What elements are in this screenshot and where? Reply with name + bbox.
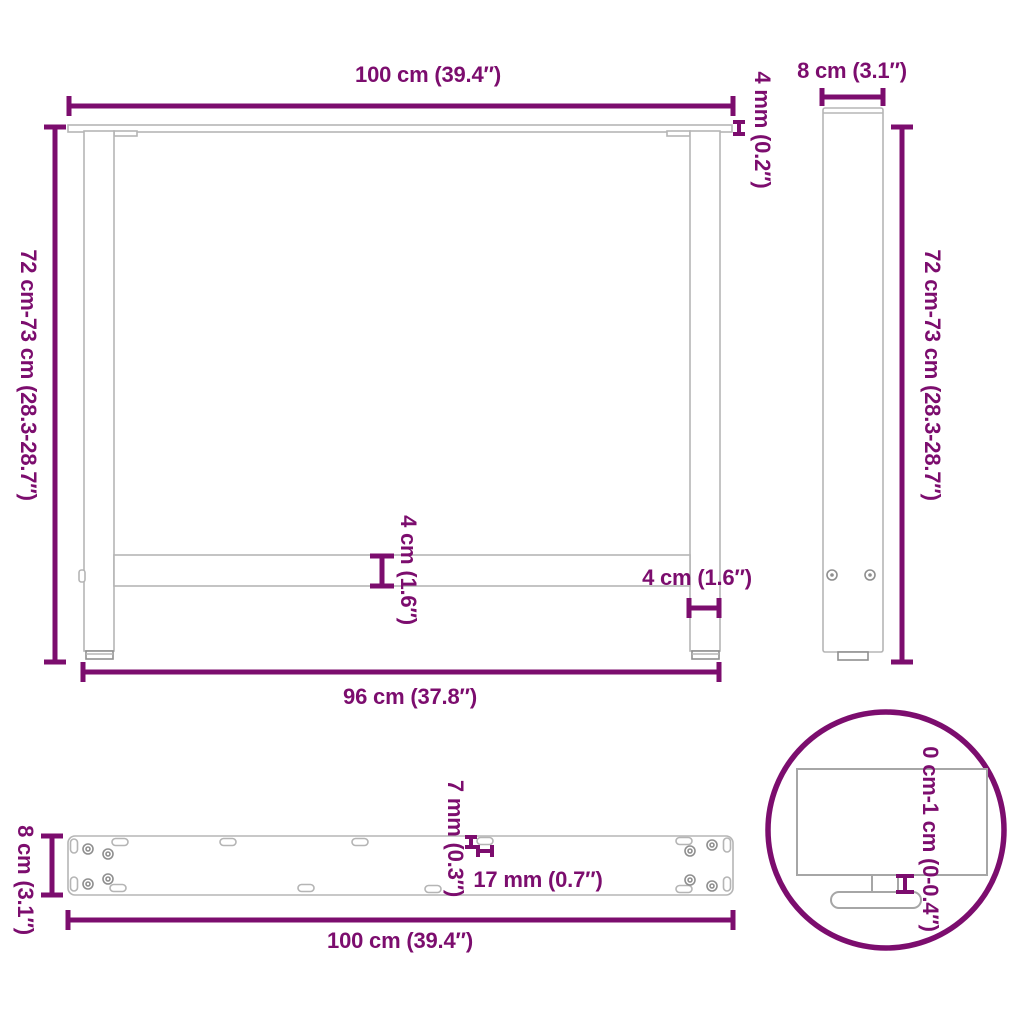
front-crossbar-thickness-label: 4 cm (1.6″)	[395, 511, 421, 629]
front-height-dimension-line	[44, 127, 66, 662]
side-height-dimension-line	[891, 127, 913, 662]
front-plate-thickness-marker	[733, 122, 745, 134]
mounting-plate	[68, 836, 733, 895]
front-right-foot	[692, 651, 719, 659]
plate-depth-dimension-line	[41, 836, 63, 895]
side-depth-dimension-line	[822, 88, 883, 106]
plate-depth-label: 8 cm (3.1″)	[12, 815, 38, 945]
front-left-foot	[86, 651, 113, 659]
front-top-width-dimension-line	[69, 96, 733, 116]
front-top-width-label: 100 cm (39.4″)	[263, 62, 593, 88]
front-right-flange	[667, 131, 690, 136]
plate-top-view	[68, 836, 733, 895]
side-height-label: 72 cm-73 cm (28.3-28.7″)	[919, 225, 945, 525]
side-depth-label: 8 cm (3.1″)	[772, 58, 932, 84]
detail-leg-bottom	[797, 769, 987, 875]
detail-foot-stem	[872, 875, 898, 892]
front-bottom-width-dimension-line	[83, 662, 719, 682]
detail-foot-base	[831, 892, 921, 908]
front-bottom-width-label: 96 cm (37.8″)	[280, 684, 540, 710]
front-left-leg	[84, 131, 114, 651]
front-leg-side-hole	[79, 570, 85, 582]
detail-circle-view	[768, 712, 1004, 948]
front-top-plate	[68, 125, 732, 132]
side-foot	[838, 652, 868, 660]
front-height-label: 72 cm-73 cm (28.3-28.7″)	[15, 225, 41, 525]
front-leg-width-label: 4 cm (1.6″)	[634, 565, 760, 591]
front-left-flange	[114, 131, 137, 136]
plate-slot-length-label: 17 mm (0.7″)	[462, 867, 614, 893]
dimension-diagram: 100 cm (39.4″) 4 mm (0.2″) 72 cm-73 cm (…	[0, 0, 1024, 1024]
detail-adjustable-height-label: 0 cm-1 cm (0-0.4″)	[917, 740, 943, 938]
plate-width-dimension-line	[68, 910, 733, 930]
plate-width-label: 100 cm (39.4″)	[235, 928, 565, 954]
side-view	[823, 108, 883, 660]
